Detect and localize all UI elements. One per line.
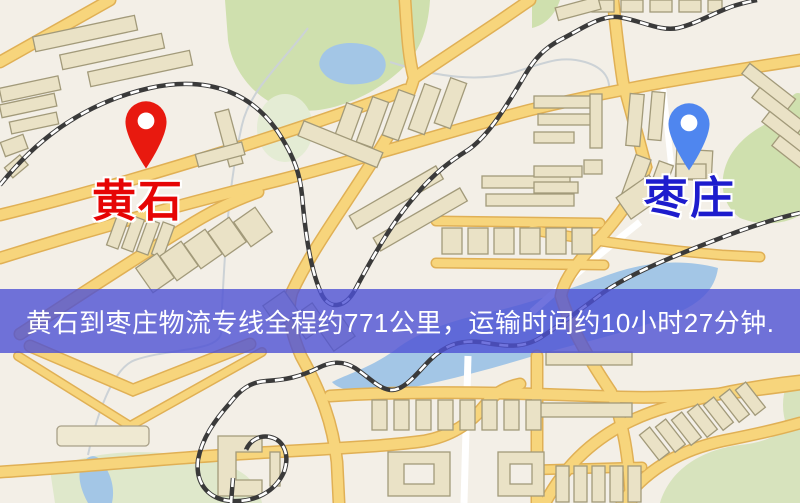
- destination-pin-hole: [681, 114, 698, 131]
- map-canvas[interactable]: 黄石到枣庄物流专线全程约771公里，运输时间约10小时27分钟. 黄石 枣庄: [0, 0, 800, 503]
- origin-pin-icon[interactable]: [118, 95, 174, 171]
- origin-pin-hole: [138, 112, 155, 129]
- origin-pin-shape: [125, 101, 166, 168]
- route-info-text: 黄石到枣庄物流专线全程约771公里，运输时间约10小时27分钟.: [0, 303, 774, 340]
- destination-pin-shape: [668, 103, 709, 170]
- origin-city-label: 黄石: [92, 180, 184, 224]
- destination-pin-icon[interactable]: [661, 97, 717, 173]
- map-graphic: [0, 0, 800, 503]
- route-info-banner: 黄石到枣庄物流专线全程约771公里，运输时间约10小时27分钟.: [0, 289, 800, 353]
- destination-city-label: 枣庄: [644, 177, 736, 221]
